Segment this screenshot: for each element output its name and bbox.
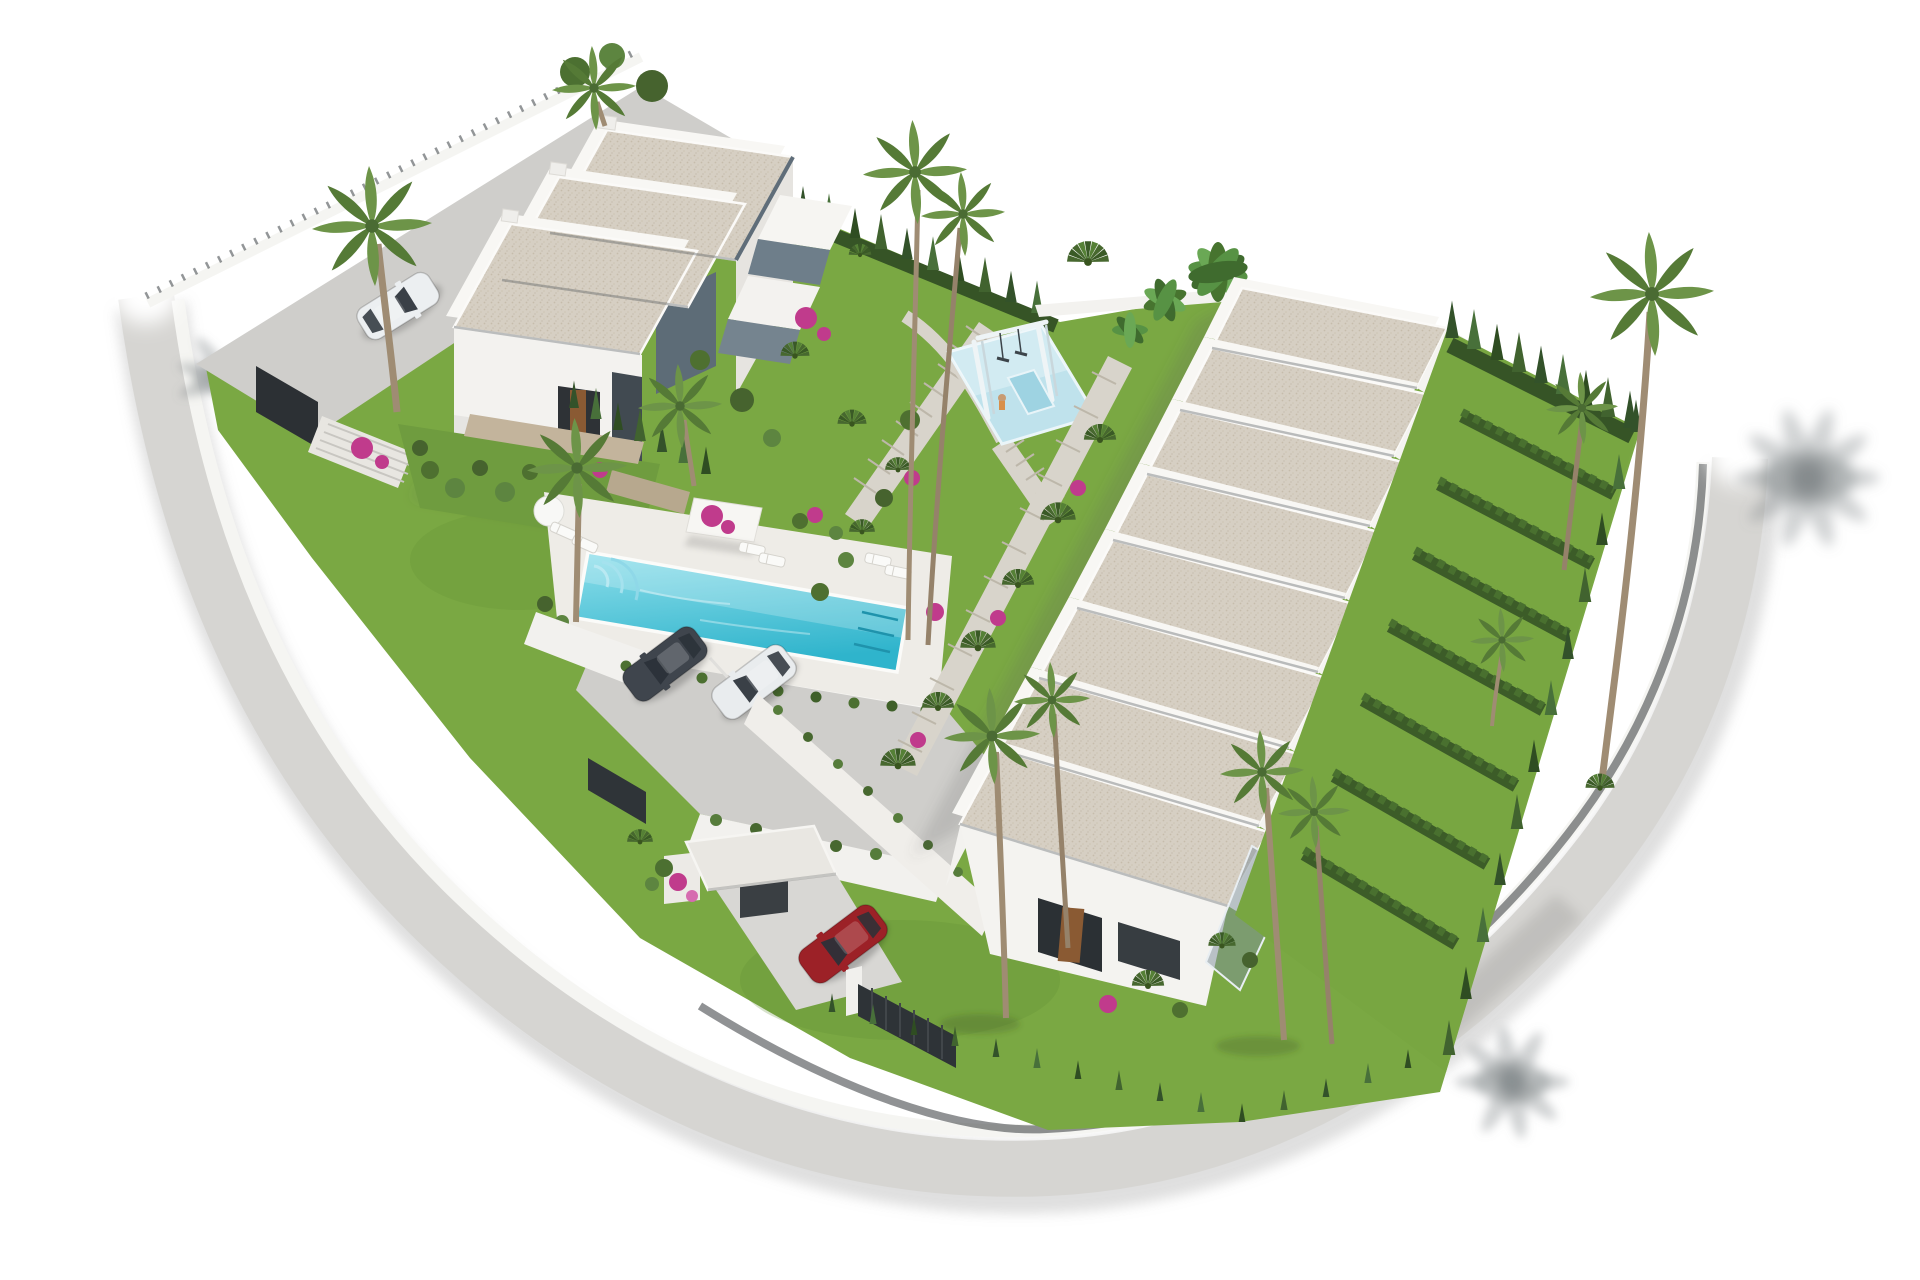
roof-bulkhead [549,162,567,176]
palm-crown [863,120,967,224]
palm-crown [1590,232,1714,356]
bush [1242,952,1258,968]
bougainvillea [1099,995,1117,1013]
fan-palm [1067,241,1109,266]
architectural-render [0,0,1920,1280]
door-wood-panel [1058,907,1085,963]
bush [1172,1002,1188,1018]
roof-bulkhead [501,209,519,223]
site-plan-svg [0,0,1920,1280]
child-figure [998,394,1006,402]
child-figure [999,401,1005,410]
